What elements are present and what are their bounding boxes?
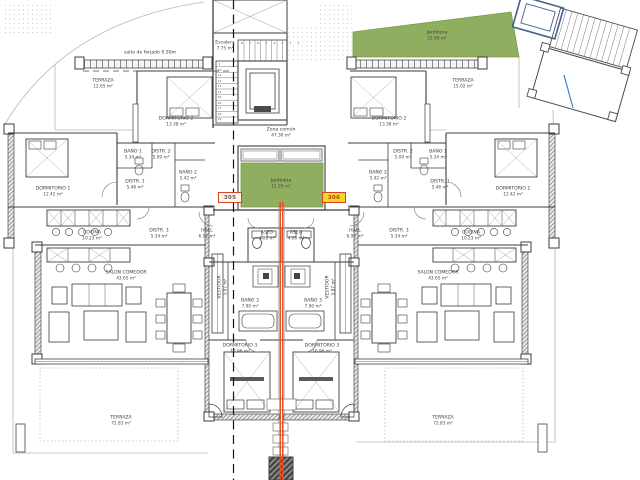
room-label-aseo-right: ASEO 4.06 m² [288, 231, 305, 242]
blue-marker-line [564, 75, 573, 108]
dining-table-left [167, 293, 191, 343]
label-jardinera-top: Jardinera 22.89 m² [427, 31, 448, 42]
structural-columns [4, 57, 559, 452]
stair-top-right [513, 0, 640, 122]
room-label-dormitorio3-right: DORMITORIO 3 16.96 m² [305, 344, 340, 355]
apartment-badge-305[interactable]: 305 [218, 192, 242, 203]
dining-table-right [372, 293, 396, 343]
elevator-top-right [513, 0, 564, 39]
room-label-hall-left: HALL 6.92 m² [199, 229, 216, 240]
stair-step-numbers-side: 9 10 11 12 13 14 15 16 17 18 19 [215, 62, 224, 123]
room-label-distr1-left: DISTR. 1 5.46 m² [125, 180, 145, 191]
room-label-cocina-left: COCINA 10.23 m² [82, 231, 102, 242]
floorplan-canvas: salto de forjado 0.50m TERRAZA 12.65 m² … [0, 0, 640, 480]
living-room-furniture [49, 284, 514, 352]
label-jardinera-center: Jardinera 11.26 m² [271, 179, 292, 190]
room-label-distr1-right: DISTR. 1 5.46 m² [430, 180, 450, 191]
room-label-distr2-right: DISTR. 2 5.09 m² [393, 150, 413, 161]
room-label-bano2-left: BAÑO 2 5.42 m² [179, 171, 197, 182]
apartment-badge-306[interactable]: 306 [322, 192, 346, 203]
room-label-terraza-top-right: TERRAZA 15.02 m² [452, 79, 473, 90]
room-label-bano3-left: BAÑO 3 7.90 m² [241, 299, 259, 310]
room-label-aseo-left: ASEO 4.06 m² [259, 231, 276, 242]
room-label-distr3-left: DISTR. 3 5.34 m² [149, 229, 169, 240]
stair-step-numbers-top: 8 7 6 5 4 3 2 1 [241, 41, 302, 45]
room-label-bano1-left: BAÑO 1 5.34 m² [124, 150, 142, 161]
room-label-terraza-top-left: TERRAZA 12.65 m² [92, 79, 113, 90]
room-label-distr2-left: DISTR. 2 5.09 m² [151, 150, 171, 161]
kitchen-counters [47, 210, 516, 272]
interior-walls [8, 71, 555, 364]
room-label-dormitorio1-right: DORMITORIO 1 12.42 m² [496, 187, 531, 198]
room-label-terraza-bottom-right: TERRAZA 72.83 m² [432, 416, 453, 427]
room-label-dormitorio3-left: DORMITORIO 3 16.96 m² [223, 344, 258, 355]
room-label-cocina-right: COCINA 10.23 m² [461, 231, 481, 242]
note-salto-forjado: salto de forjado 0.50m [124, 50, 176, 56]
room-label-dormitorio2-right: DORMITORIO 2 13.38 m² [372, 117, 407, 128]
room-label-hall-right: HALL 6.92 m² [347, 229, 364, 240]
room-label-distr3-right: DISTR. 3 5.34 m² [389, 229, 409, 240]
room-label-salon-left: SALON COMEDOR 43.65 m² [105, 271, 146, 282]
stair-core [213, 0, 287, 128]
room-label-terraza-bottom-left: TERRAZA 72.83 m² [110, 416, 131, 427]
room-label-vestidor-right: VESTIDOR 5.97 m² [326, 275, 337, 298]
room-label-bano3-right: BAÑO 3 7.90 m² [304, 299, 322, 310]
section-cut [267, 202, 296, 480]
label-escalera: Escalera 7.75 m² [215, 41, 234, 52]
room-label-vestidor-left: VESTIDOR 5.97 m² [218, 275, 229, 298]
room-label-salon-right: SALON COMEDOR 43.65 m² [417, 271, 458, 282]
elevator-car [250, 73, 275, 109]
note-text: salto de forjado 0.50m [124, 50, 176, 56]
room-label-bano2-right: BAÑO 2 5.42 m² [369, 171, 387, 182]
room-label-bano1-right: BAÑO 1 5.34 m² [429, 150, 447, 161]
room-label-dormitorio2-left: DORMITORIO 2 13.38 m² [159, 117, 194, 128]
section-column-block [269, 457, 293, 480]
label-zona-comun: Zona común 47.36 m² [267, 128, 296, 139]
room-label-dormitorio1-left: DORMITORIO 1 12.42 m² [36, 187, 71, 198]
